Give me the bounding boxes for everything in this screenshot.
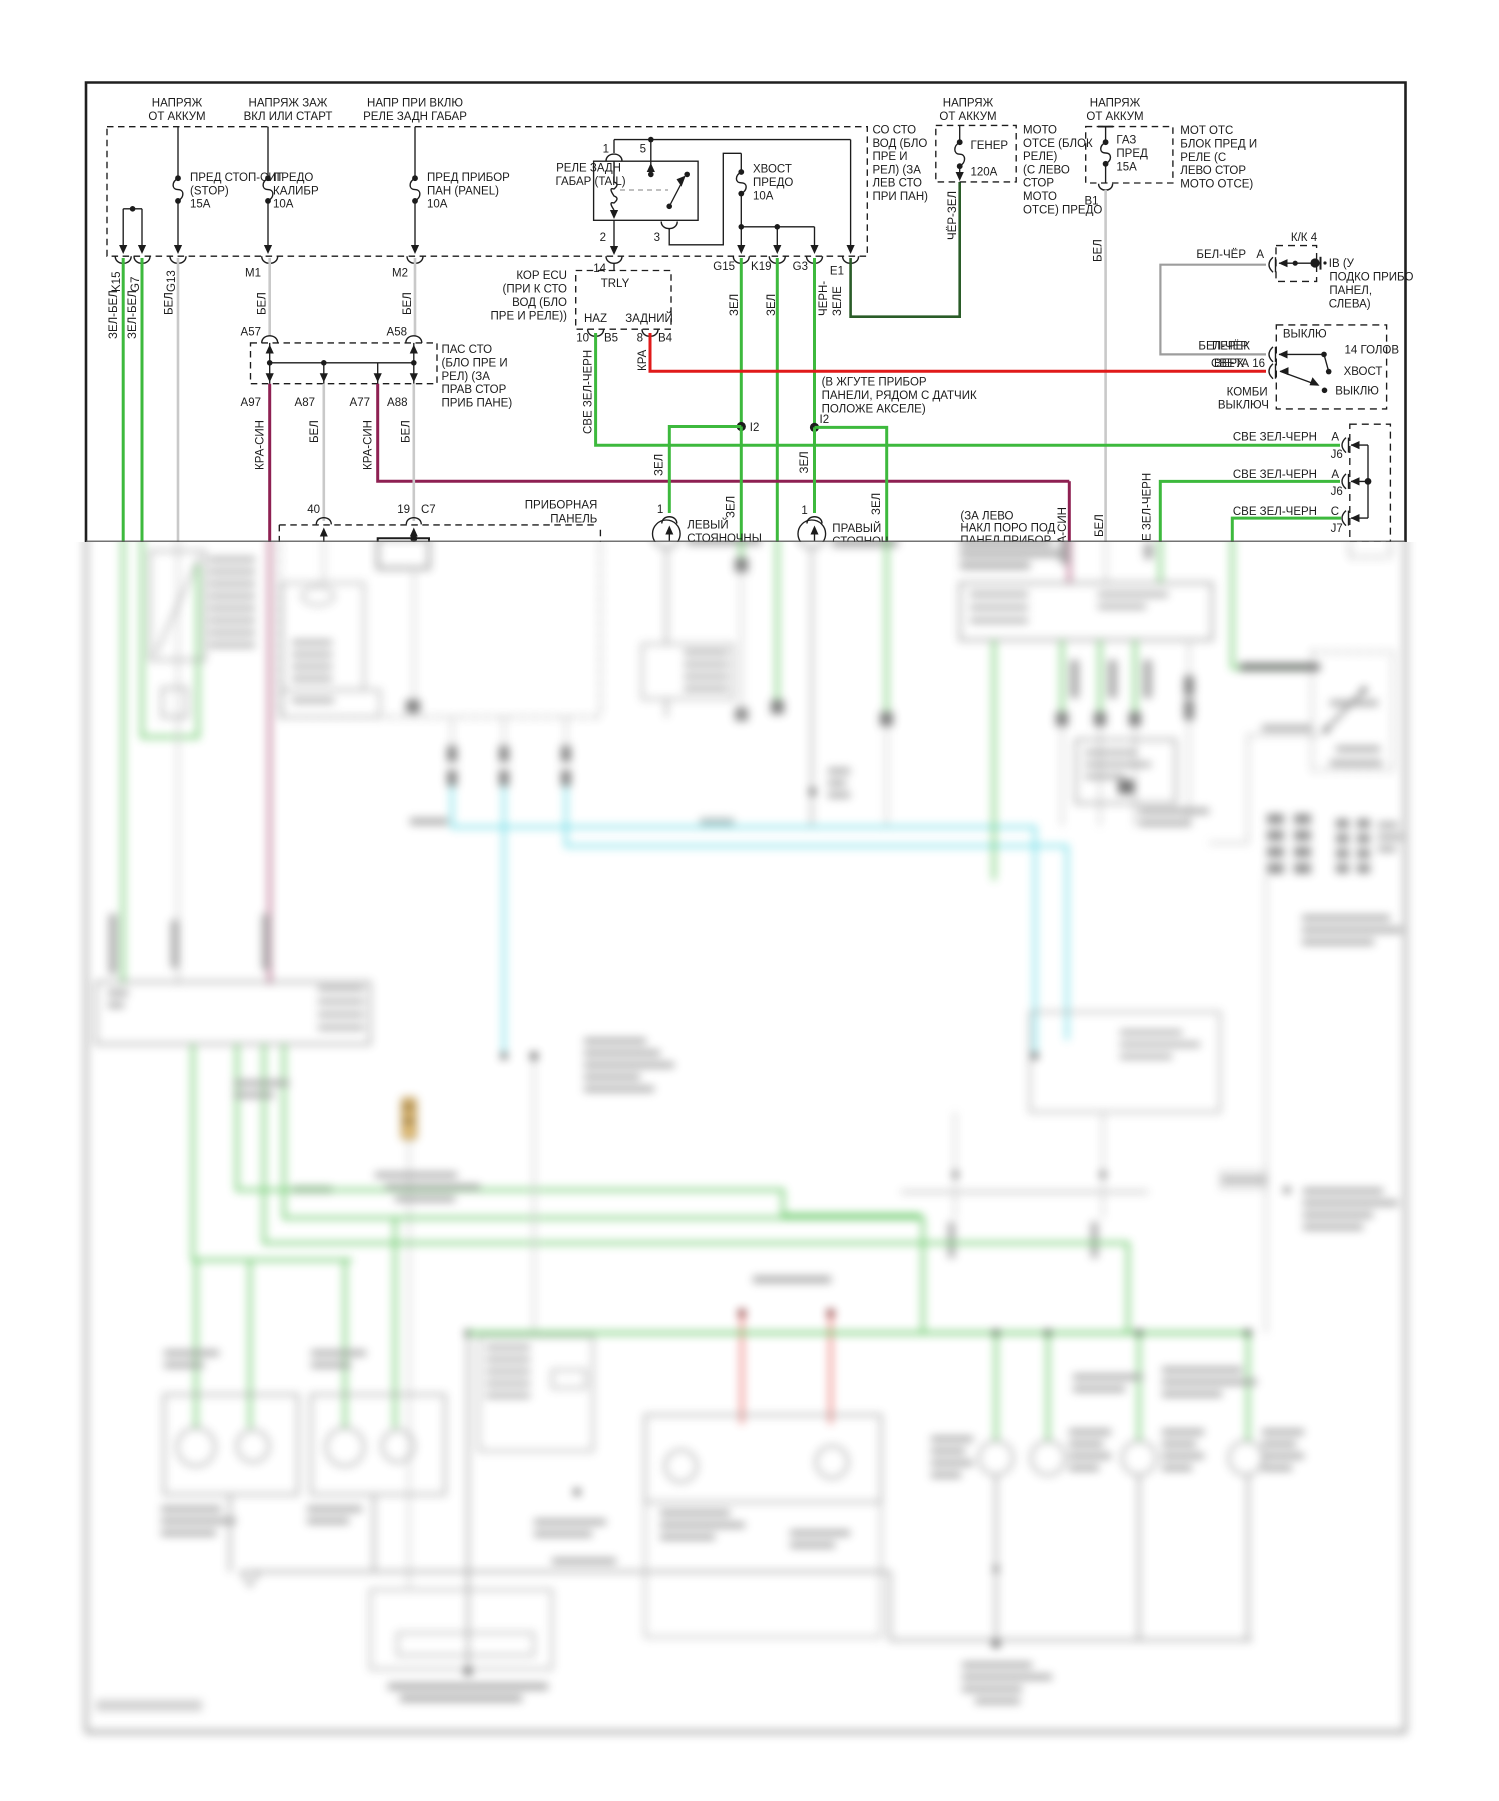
svg-text:НАКЛ ПОРО ПОД: НАКЛ ПОРО ПОД xyxy=(960,523,1055,535)
svg-text:HAZ: HAZ xyxy=(584,313,607,325)
svg-text:C7: C7 xyxy=(421,504,436,516)
svg-text:ВОД (БЛО: ВОД (БЛО xyxy=(873,138,928,150)
svg-text:ПРЕД: ПРЕД xyxy=(1116,148,1148,160)
svg-text:ЗАДНИЙ: ЗАДНИЙ xyxy=(625,312,673,325)
svg-text:ВОД (БЛО: ВОД (БЛО xyxy=(512,297,567,309)
svg-text:КРА-СИН: КРА-СИН xyxy=(255,420,267,470)
svg-text:БЕЛ: БЕЛ xyxy=(402,292,414,315)
svg-text:I2: I2 xyxy=(820,414,830,426)
svg-text:I2: I2 xyxy=(750,422,760,434)
svg-text:ЛЕВЫЙ: ЛЕВЫЙ xyxy=(687,519,728,532)
svg-text:14 ГОЛОВ: 14 ГОЛОВ xyxy=(1345,345,1400,357)
svg-text:СВЕ ЗЕЛ-ЧЕРН: СВЕ ЗЕЛ-ЧЕРН xyxy=(583,350,595,434)
svg-text:K19: K19 xyxy=(751,261,771,273)
svg-text:ЗЕЛ-БЕЛ: ЗЕЛ-БЕЛ xyxy=(127,290,139,339)
svg-text:ЧЁР-ЗЕЛ: ЧЁР-ЗЕЛ xyxy=(947,191,959,240)
svg-text:ПОЛОЖЕ АКСЕЛЕ): ПОЛОЖЕ АКСЕЛЕ) xyxy=(822,403,926,415)
svg-text:ГЕНЕР: ГЕНЕР xyxy=(971,140,1009,152)
svg-text:НАПРЯЖ: НАПРЯЖ xyxy=(943,98,994,110)
svg-text:ПАС СТО: ПАС СТО xyxy=(442,344,493,356)
svg-text:СВЕ ЗЕЛ-ЧЕРН: СВЕ ЗЕЛ-ЧЕРН xyxy=(1233,469,1317,481)
svg-text:10A: 10A xyxy=(273,199,294,211)
svg-text:БЕЛ: БЕЛ xyxy=(1093,239,1105,262)
svg-text:МОТО: МОТО xyxy=(1023,125,1057,137)
svg-text:МОТО ОТСЕ): МОТО ОТСЕ) xyxy=(1180,179,1253,191)
svg-text:(ЗА ЛЕВО: (ЗА ЛЕВО xyxy=(960,511,1013,523)
svg-text:ВЕРХ: ВЕРХ xyxy=(1214,358,1244,370)
svg-text:M2: M2 xyxy=(392,268,408,280)
svg-text:ЗЕЛЕ: ЗЕЛЕ xyxy=(832,286,844,316)
svg-text:СЛЕВА): СЛЕВА) xyxy=(1329,299,1371,311)
svg-text:A77: A77 xyxy=(350,397,370,409)
svg-text:A87: A87 xyxy=(295,397,315,409)
svg-text:КОМБИ: КОМБИ xyxy=(1227,387,1268,399)
svg-text:ЧЕРН-: ЧЕРН- xyxy=(818,281,830,316)
svg-text:БЕЛ: БЕЛ xyxy=(1094,514,1106,537)
svg-text:A97: A97 xyxy=(241,397,261,409)
svg-text:ПЕРЕК: ПЕРЕК xyxy=(1212,341,1250,353)
svg-text:КРА-СИН: КРА-СИН xyxy=(363,420,375,470)
svg-text:НАПРЯЖ: НАПРЯЖ xyxy=(1090,98,1141,110)
svg-text:B4: B4 xyxy=(658,333,673,345)
svg-text:(С ЛЕВО: (С ЛЕВО xyxy=(1023,164,1070,176)
svg-text:РЕЛЕ (С: РЕЛЕ (С xyxy=(1180,152,1226,164)
svg-text:РЕЛЕ): РЕЛЕ) xyxy=(1023,151,1058,163)
svg-text:K15: K15 xyxy=(111,272,123,292)
svg-text:ОТ АККУМ: ОТ АККУМ xyxy=(939,111,996,123)
svg-text:J6: J6 xyxy=(1331,449,1343,461)
svg-text:120A: 120A xyxy=(971,167,998,179)
svg-text:ПАНЕЛИ, РЯДОМ С ДАТЧИК: ПАНЕЛИ, РЯДОМ С ДАТЧИК xyxy=(822,390,977,402)
svg-text:19: 19 xyxy=(397,504,410,516)
svg-text:ПРЕД ПРИБОР: ПРЕД ПРИБОР xyxy=(427,172,510,184)
svg-text:ЗЕЛ: ЗЕЛ xyxy=(654,454,666,476)
svg-text:ЗЕЛ: ЗЕЛ xyxy=(871,493,883,515)
svg-text:10: 10 xyxy=(576,333,589,345)
svg-text:ПРЕДО: ПРЕДО xyxy=(273,172,313,184)
svg-text:TRLY: TRLY xyxy=(601,278,630,290)
svg-text:ПОДКО ПРИБО: ПОДКО ПРИБО xyxy=(1329,272,1413,284)
svg-text:ПРАВЫЙ: ПРАВЫЙ xyxy=(832,522,881,535)
svg-text:ВЫКЛЮЧ: ВЫКЛЮЧ xyxy=(1218,400,1269,412)
svg-text:ОТ АККУМ: ОТ АККУМ xyxy=(148,111,205,123)
svg-text:ОТ АККУМ: ОТ АККУМ xyxy=(1086,111,1143,123)
svg-text:БЕЛ-ЧЁР: БЕЛ-ЧЁР xyxy=(1196,249,1246,261)
svg-text:ГАЗ: ГАЗ xyxy=(1116,135,1136,147)
svg-text:КОР ECU: КОР ECU xyxy=(516,270,567,282)
svg-text:5: 5 xyxy=(640,144,646,156)
svg-text:СТОР: СТОР xyxy=(1023,178,1054,190)
svg-text:ПРИБ ПАНЕ): ПРИБ ПАНЕ) xyxy=(442,398,513,410)
svg-text:ПАНЕЛЬ: ПАНЕЛЬ xyxy=(550,514,597,526)
svg-text:A: A xyxy=(1256,249,1264,261)
svg-text:СО СТО: СО СТО xyxy=(873,125,917,137)
svg-text:A58: A58 xyxy=(387,327,407,339)
svg-text:3: 3 xyxy=(654,232,660,244)
svg-text:10A: 10A xyxy=(427,199,448,211)
svg-text:(БЛО ПРЕ И: (БЛО ПРЕ И xyxy=(442,357,508,369)
svg-text:ЛЕВО СТОР: ЛЕВО СТОР xyxy=(1180,165,1246,177)
svg-text:СВЕ ЗЕЛ-ЧЕРН: СВЕ ЗЕЛ-ЧЕРН xyxy=(1142,473,1154,542)
svg-text:РЕЛ) (ЗА: РЕЛ) (ЗА xyxy=(873,164,922,176)
svg-text:IB (У: IB (У xyxy=(1329,258,1355,270)
svg-text:ЗЕЛ: ЗЕЛ xyxy=(726,496,738,518)
svg-text:B5: B5 xyxy=(604,333,618,345)
svg-text:КРА: КРА xyxy=(637,349,649,371)
svg-text:A57: A57 xyxy=(241,327,261,339)
svg-text:КРА-СИН: КРА-СИН xyxy=(1057,507,1069,542)
svg-text:К/К 4: К/К 4 xyxy=(1291,232,1318,244)
svg-text:14: 14 xyxy=(593,263,606,275)
svg-text:G3: G3 xyxy=(793,261,808,273)
svg-text:A88: A88 xyxy=(387,397,407,409)
svg-text:A: A xyxy=(1331,432,1339,444)
svg-text:ПРЕ И: ПРЕ И xyxy=(873,151,908,163)
svg-text:БЕЛ: БЕЛ xyxy=(401,420,413,443)
svg-text:J6: J6 xyxy=(1331,486,1343,498)
svg-text:ПРАВ СТОР: ПРАВ СТОР xyxy=(442,384,507,396)
svg-text:E1: E1 xyxy=(830,266,844,278)
svg-text:2: 2 xyxy=(600,232,606,244)
svg-text:НАПРЯЖ ЗАЖ: НАПРЯЖ ЗАЖ xyxy=(249,98,328,110)
svg-text:B1: B1 xyxy=(1085,196,1099,208)
svg-text:40: 40 xyxy=(307,504,320,516)
svg-text:J7: J7 xyxy=(1331,523,1343,535)
svg-text:ВКЛ ИЛИ СТАРТ: ВКЛ ИЛИ СТАРТ xyxy=(244,111,333,123)
svg-text:ПАНЕЛ,: ПАНЕЛ, xyxy=(1329,285,1372,297)
svg-text:БЕЛ: БЕЛ xyxy=(257,292,269,315)
svg-text:ПРИБОРНАЯ: ПРИБОРНАЯ xyxy=(525,500,598,512)
svg-text:ХВОСТ: ХВОСТ xyxy=(1344,366,1383,378)
svg-text:ЗЕЛ: ЗЕЛ xyxy=(799,451,811,473)
svg-text:10A: 10A xyxy=(753,191,774,203)
svg-text:НАПР ПРИ ВКЛЮ: НАПР ПРИ ВКЛЮ xyxy=(367,98,463,110)
svg-text:15A: 15A xyxy=(190,199,211,211)
svg-text:ОТСЕ (БЛОК: ОТСЕ (БЛОК xyxy=(1023,138,1093,150)
svg-text:РЕЛЕ ЗАДН: РЕЛЕ ЗАДН xyxy=(556,163,621,175)
svg-text:1: 1 xyxy=(657,504,663,516)
svg-text:РЕЛЕ ЗАДН ГАБАР: РЕЛЕ ЗАДН ГАБАР xyxy=(363,111,467,123)
svg-text:БЕЛ: БЕЛ xyxy=(309,420,321,443)
svg-text:МОТО: МОТО xyxy=(1023,191,1057,203)
svg-text:1: 1 xyxy=(603,144,609,156)
svg-text:ВЫКЛЮ: ВЫКЛЮ xyxy=(1283,329,1327,341)
svg-text:ХВОСТ: ХВОСТ xyxy=(753,164,792,176)
svg-text:A: A xyxy=(1331,469,1339,481)
svg-text:1: 1 xyxy=(801,505,807,517)
svg-text:НАПРЯЖ: НАПРЯЖ xyxy=(152,98,203,110)
svg-text:ЗЕЛ-БЕЛ: ЗЕЛ-БЕЛ xyxy=(108,290,120,339)
svg-text:(STOP): (STOP) xyxy=(190,185,229,197)
svg-text:БЕЛ: БЕЛ xyxy=(164,292,176,315)
svg-text:ВЫКЛЮ: ВЫКЛЮ xyxy=(1335,386,1379,398)
svg-text:МОТ ОТС: МОТ ОТС xyxy=(1180,125,1233,137)
svg-text:РЕЛ) (ЗА: РЕЛ) (ЗА xyxy=(442,371,491,383)
svg-text:СВЕ ЗЕЛ-ЧЕРН: СВЕ ЗЕЛ-ЧЕРН xyxy=(1233,432,1317,444)
svg-text:СВЕ ЗЕЛ-ЧЕРН: СВЕ ЗЕЛ-ЧЕРН xyxy=(1233,506,1317,518)
svg-text:M1: M1 xyxy=(245,268,261,280)
svg-text:(В ЖГУТЕ ПРИБОР: (В ЖГУТЕ ПРИБОР xyxy=(822,376,927,388)
svg-text:G13: G13 xyxy=(166,270,178,292)
svg-text:G7: G7 xyxy=(130,277,142,292)
svg-text:КАЛИБР: КАЛИБР xyxy=(273,185,319,197)
svg-text:ПРЕ И РЕЛЕ)): ПРЕ И РЕЛЕ)) xyxy=(491,311,568,323)
svg-text:ПАН (PANEL): ПАН (PANEL) xyxy=(427,185,499,197)
svg-text:15A: 15A xyxy=(1116,162,1137,174)
svg-text:БЛОК ПРЕД И: БЛОК ПРЕД И xyxy=(1180,138,1257,150)
svg-text:ПРЕДО: ПРЕДО xyxy=(753,177,793,189)
svg-text:C: C xyxy=(1331,506,1339,518)
svg-text:G15: G15 xyxy=(713,261,735,273)
svg-text:ЗЕЛ: ЗЕЛ xyxy=(729,294,741,316)
svg-text:8: 8 xyxy=(637,333,643,345)
svg-text:ЛЕВ СТО: ЛЕВ СТО xyxy=(873,178,923,190)
svg-text:(ПРИ К СТО: (ПРИ К СТО xyxy=(503,284,568,296)
svg-text:ПРИ ПАН): ПРИ ПАН) xyxy=(873,191,929,203)
